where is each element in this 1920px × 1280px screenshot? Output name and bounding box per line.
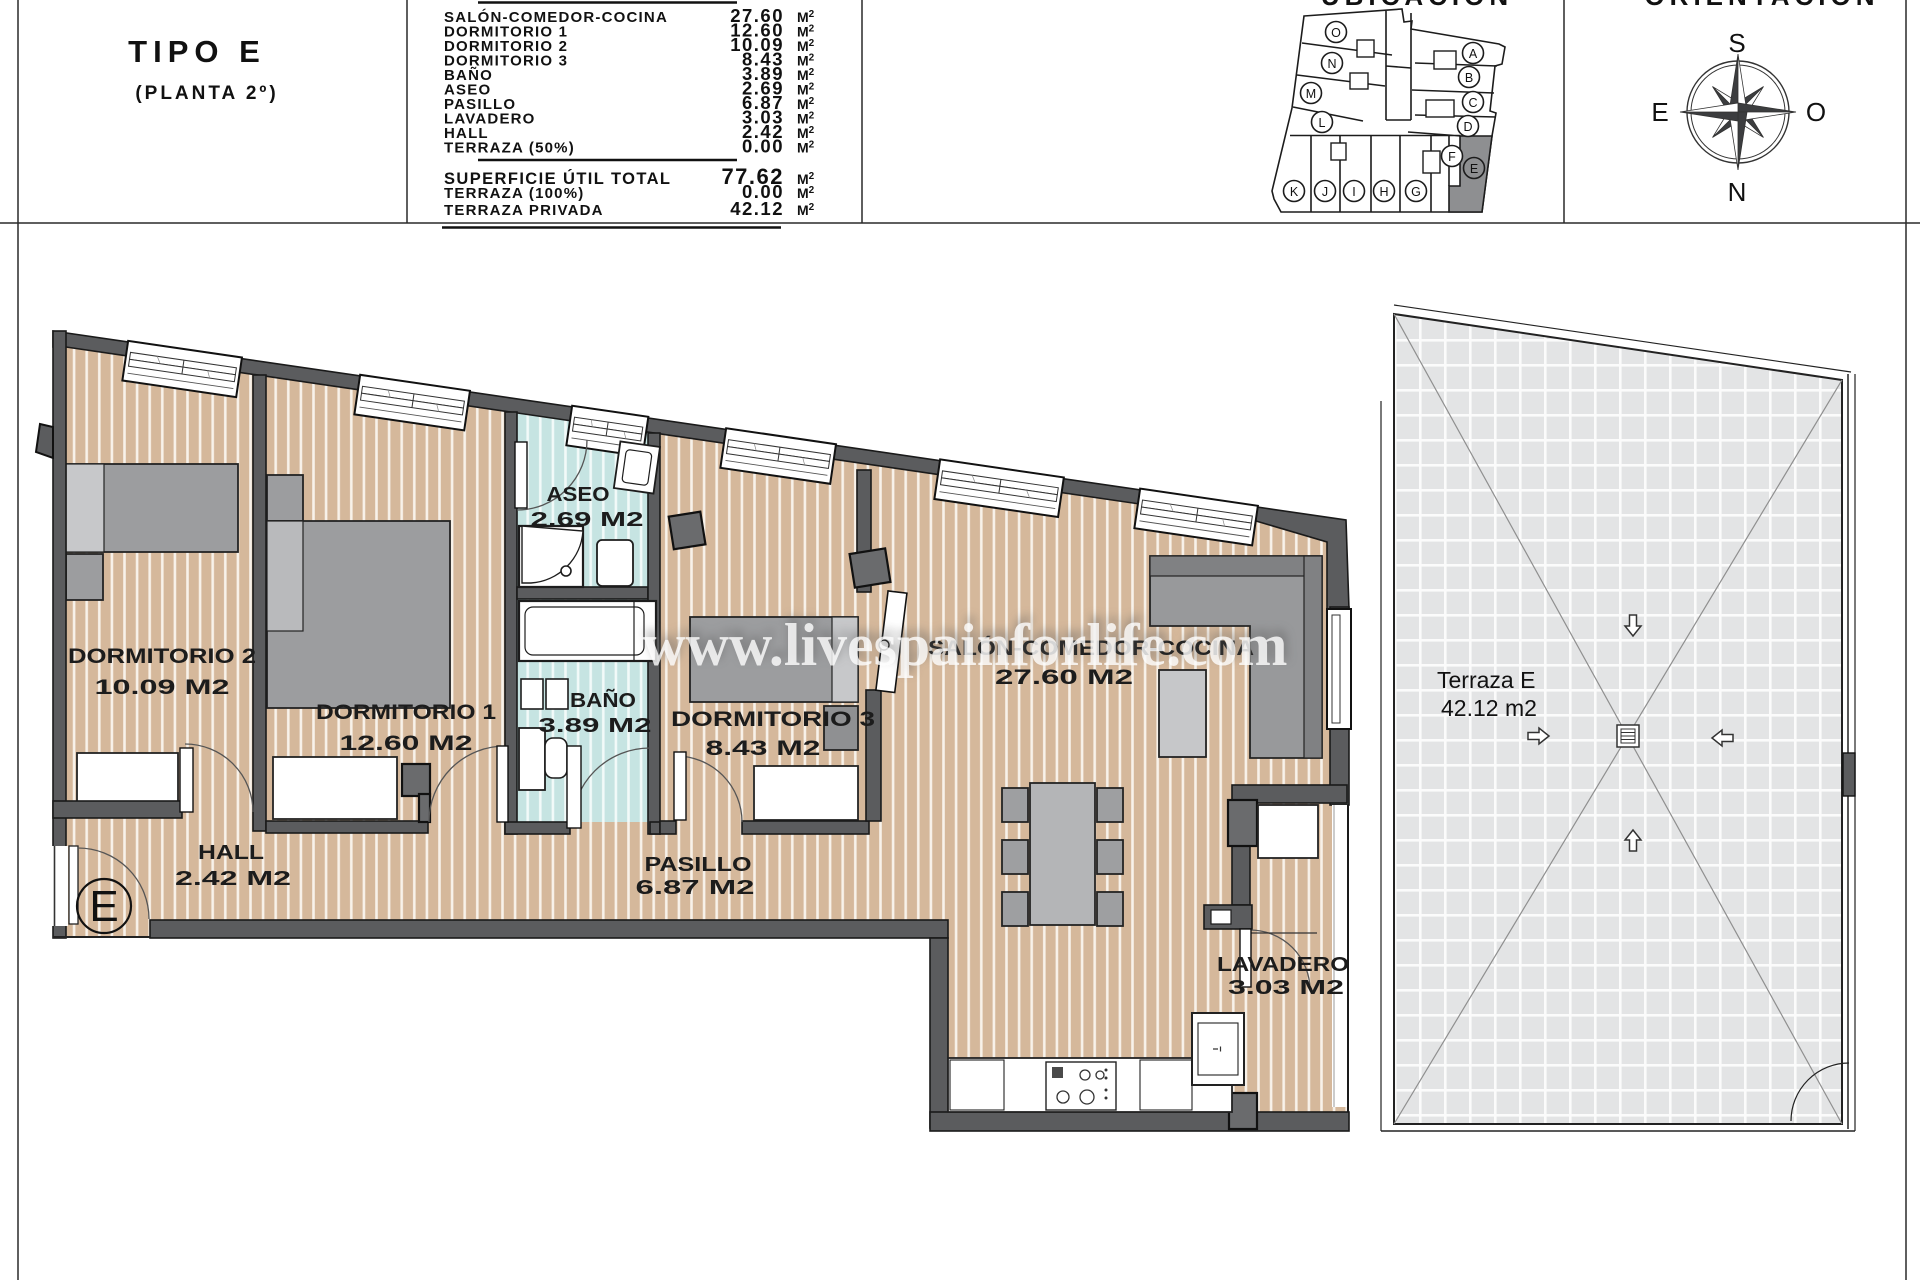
svg-text:K: K <box>1290 185 1299 199</box>
svg-text:J: J <box>1322 185 1328 199</box>
svg-text:N: N <box>1327 57 1336 71</box>
svg-text:Terraza E: Terraza E <box>1437 667 1535 693</box>
svg-text:M: M <box>1306 87 1316 101</box>
svg-text:BAÑO: BAÑO <box>570 689 636 712</box>
svg-text:DORMITORIO 1: DORMITORIO 1 <box>316 701 496 724</box>
svg-text:8.43 M2: 8.43 M2 <box>706 737 821 760</box>
svg-text:UBICACIÓN: UBICACIÓN <box>1321 0 1513 11</box>
svg-text:G: G <box>1411 185 1421 199</box>
svg-text:TERRAZA PRIVADA: TERRAZA PRIVADA <box>444 202 604 219</box>
svg-text:S: S <box>1728 28 1745 58</box>
svg-text:2.42 M2: 2.42 M2 <box>175 868 291 890</box>
svg-text:TERRAZA (100%): TERRAZA (100%) <box>444 185 584 202</box>
svg-text:E: E <box>1651 97 1668 127</box>
svg-text:C: C <box>1468 96 1477 110</box>
svg-text:LAVADERO: LAVADERO <box>1217 954 1349 976</box>
svg-text:3.89 M2: 3.89 M2 <box>539 715 652 737</box>
svg-text:TERRAZA (50%): TERRAZA (50%) <box>444 140 575 157</box>
svg-text:F: F <box>1448 150 1456 164</box>
svg-text:3.03 M2: 3.03 M2 <box>1228 977 1344 999</box>
svg-text:42.12: 42.12 <box>730 198 784 219</box>
svg-text:www.livespainforlife.com: www.livespainforlife.com <box>643 612 1288 678</box>
svg-text:ORIENTACIÓN: ORIENTACIÓN <box>1644 0 1879 11</box>
svg-text:HALL: HALL <box>198 842 264 864</box>
svg-text:L: L <box>1319 116 1326 130</box>
svg-text:N: N <box>1728 177 1747 207</box>
svg-text:O: O <box>1806 97 1826 127</box>
svg-text:ASEO: ASEO <box>547 484 610 506</box>
svg-text:E: E <box>1470 162 1478 176</box>
svg-text:2.69 M2: 2.69 M2 <box>531 509 644 531</box>
svg-text:TIPO E: TIPO E <box>128 34 266 69</box>
svg-text:D: D <box>1463 120 1472 134</box>
svg-text:10.09 M2: 10.09 M2 <box>95 676 230 699</box>
svg-text:6.87 M2: 6.87 M2 <box>636 877 755 899</box>
svg-text:(PLANTA 2º): (PLANTA 2º) <box>135 83 278 104</box>
svg-text:DORMITORIO 2: DORMITORIO 2 <box>68 645 256 668</box>
svg-text:PASILLO: PASILLO <box>645 854 752 876</box>
svg-text:B: B <box>1465 71 1473 85</box>
svg-text:12.60 M2: 12.60 M2 <box>340 732 473 755</box>
svg-text:O: O <box>1331 26 1341 40</box>
svg-text:H: H <box>1379 185 1388 199</box>
svg-text:E: E <box>89 882 118 931</box>
svg-text:A: A <box>1469 47 1478 61</box>
svg-text:DORMITORIO 3: DORMITORIO 3 <box>671 708 875 731</box>
svg-text:42.12 m2: 42.12 m2 <box>1441 695 1537 721</box>
svg-text:0.00: 0.00 <box>742 136 784 157</box>
svg-text:I: I <box>1352 185 1355 199</box>
